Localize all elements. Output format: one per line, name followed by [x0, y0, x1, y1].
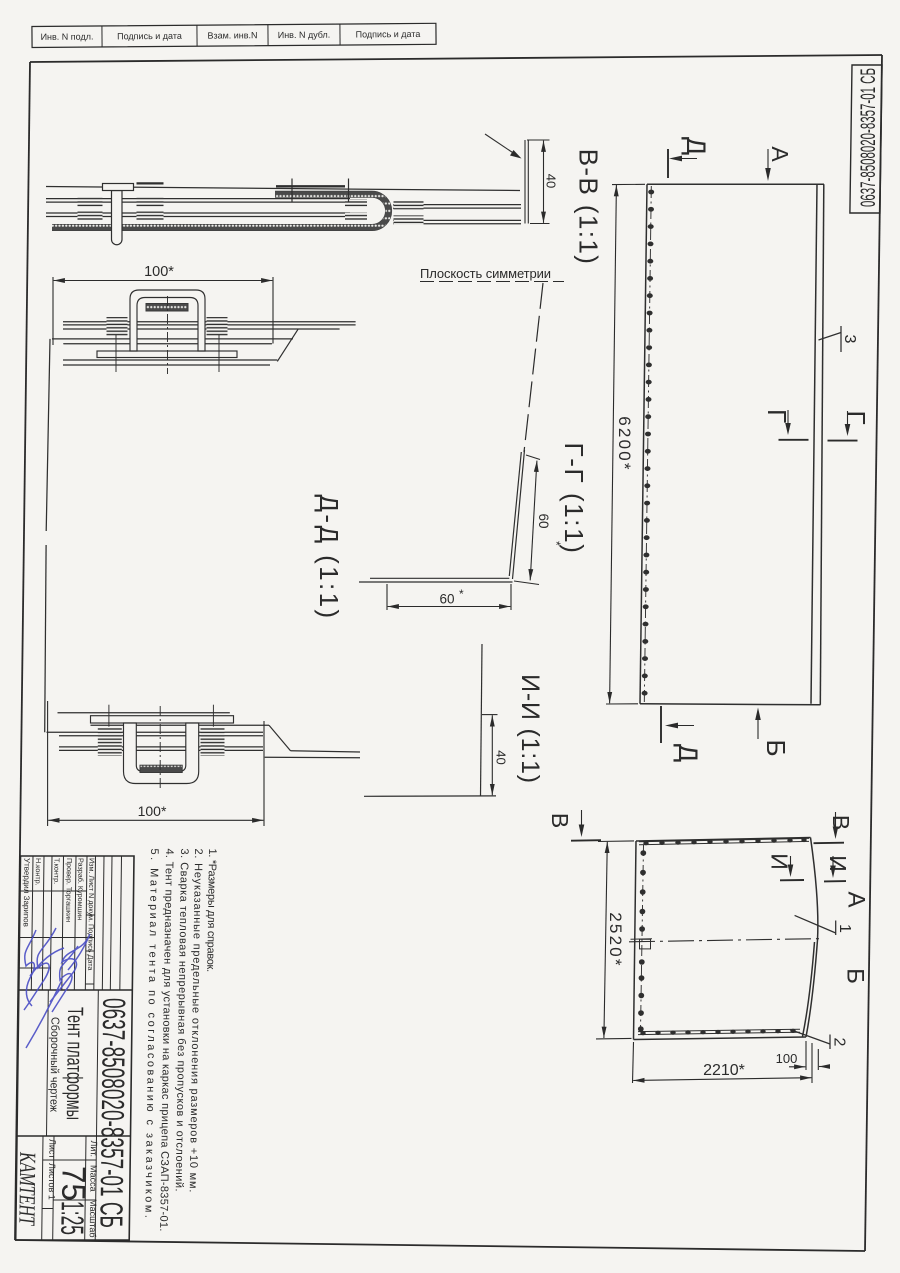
svg-text:Утвердил Зарипов: Утвердил Зарипов: [22, 858, 32, 927]
svg-text:Тент платформы: Тент платформы: [62, 1007, 88, 1120]
svg-text:40: 40: [494, 750, 509, 764]
svg-text:КАМТЕНТ: КАМТЕНТ: [14, 1151, 40, 1226]
svg-text:1. *Размеры для справок.: 1. *Размеры для справок.: [204, 849, 218, 973]
svg-text:Г-Г (1:1): Г-Г (1:1): [559, 443, 589, 555]
svg-text:40: 40: [544, 174, 559, 188]
svg-text:В: В: [828, 815, 854, 830]
svg-text:Разраб. Куромшин: Разраб. Куромшин: [76, 858, 86, 920]
svg-text:Подпись и дата: Подпись и дата: [117, 31, 182, 42]
svg-text:3: 3: [841, 335, 858, 344]
svg-text:*: *: [549, 541, 563, 546]
svg-text:Взам. инв.N: Взам. инв.N: [207, 30, 257, 40]
svg-text:*: *: [459, 587, 464, 601]
svg-text:6200*: 6200*: [615, 416, 634, 471]
svg-text:Д-Д (1:1): Д-Д (1:1): [314, 494, 344, 620]
svg-text:Инв. N подл.: Инв. N подл.: [41, 32, 94, 42]
svg-text:2: 2: [831, 1038, 848, 1047]
svg-text:Т.контр.: Т.контр.: [52, 858, 61, 884]
svg-text:1:25: 1:25: [54, 1201, 90, 1235]
svg-text:Инв. N дубл.: Инв. N дубл.: [278, 30, 331, 40]
svg-text:В: В: [547, 813, 573, 828]
svg-text:Н.контр.: Н.контр.: [34, 858, 43, 886]
svg-text:Лит.: Лит.: [89, 1141, 99, 1158]
svg-text:И-И (1:1): И-И (1:1): [516, 674, 544, 784]
svg-text:100: 100: [776, 1051, 798, 1066]
svg-text:2520*: 2520*: [606, 912, 625, 967]
svg-text:И: И: [825, 855, 851, 872]
svg-text:Изм. Лист N докум. Подпись Да: Изм. Лист N докум. Подпись Дата: [86, 858, 96, 970]
svg-text:Б: Б: [761, 739, 791, 756]
svg-text:А: А: [767, 146, 793, 162]
svg-text:Д: Д: [673, 744, 703, 762]
svg-text:Б: Б: [842, 968, 869, 984]
svg-text:Лист: Лист: [47, 1139, 57, 1159]
svg-text:2210*: 2210*: [703, 1062, 745, 1079]
svg-text:Сборочный чертеж: Сборочный чертеж: [47, 1017, 60, 1112]
svg-text:60: 60: [439, 592, 454, 607]
svg-text:1: 1: [836, 924, 853, 933]
svg-text:60: 60: [536, 513, 551, 528]
svg-text:0637-8508020-8357-01 СБ: 0637-8508020-8357-01 СБ: [93, 998, 132, 1228]
svg-text:Г: Г: [841, 410, 871, 424]
svg-text:Д: Д: [681, 137, 711, 155]
svg-text:А: А: [843, 891, 870, 907]
svg-text:В-В (1:1): В-В (1:1): [574, 149, 604, 266]
svg-text:100*: 100*: [138, 803, 167, 819]
svg-text:100*: 100*: [144, 264, 174, 280]
svg-text:Плоскость симметрии: Плоскость симметрии: [420, 266, 551, 281]
svg-text:Подпись и дата: Подпись и дата: [356, 29, 421, 40]
svg-text:75: 75: [55, 1166, 92, 1201]
svg-text:0637-8508020-8357-01 СБ: 0637-8508020-8357-01 СБ: [857, 68, 880, 207]
svg-text:Провер. Торгашкин: Провер. Торгашкин: [64, 858, 74, 922]
